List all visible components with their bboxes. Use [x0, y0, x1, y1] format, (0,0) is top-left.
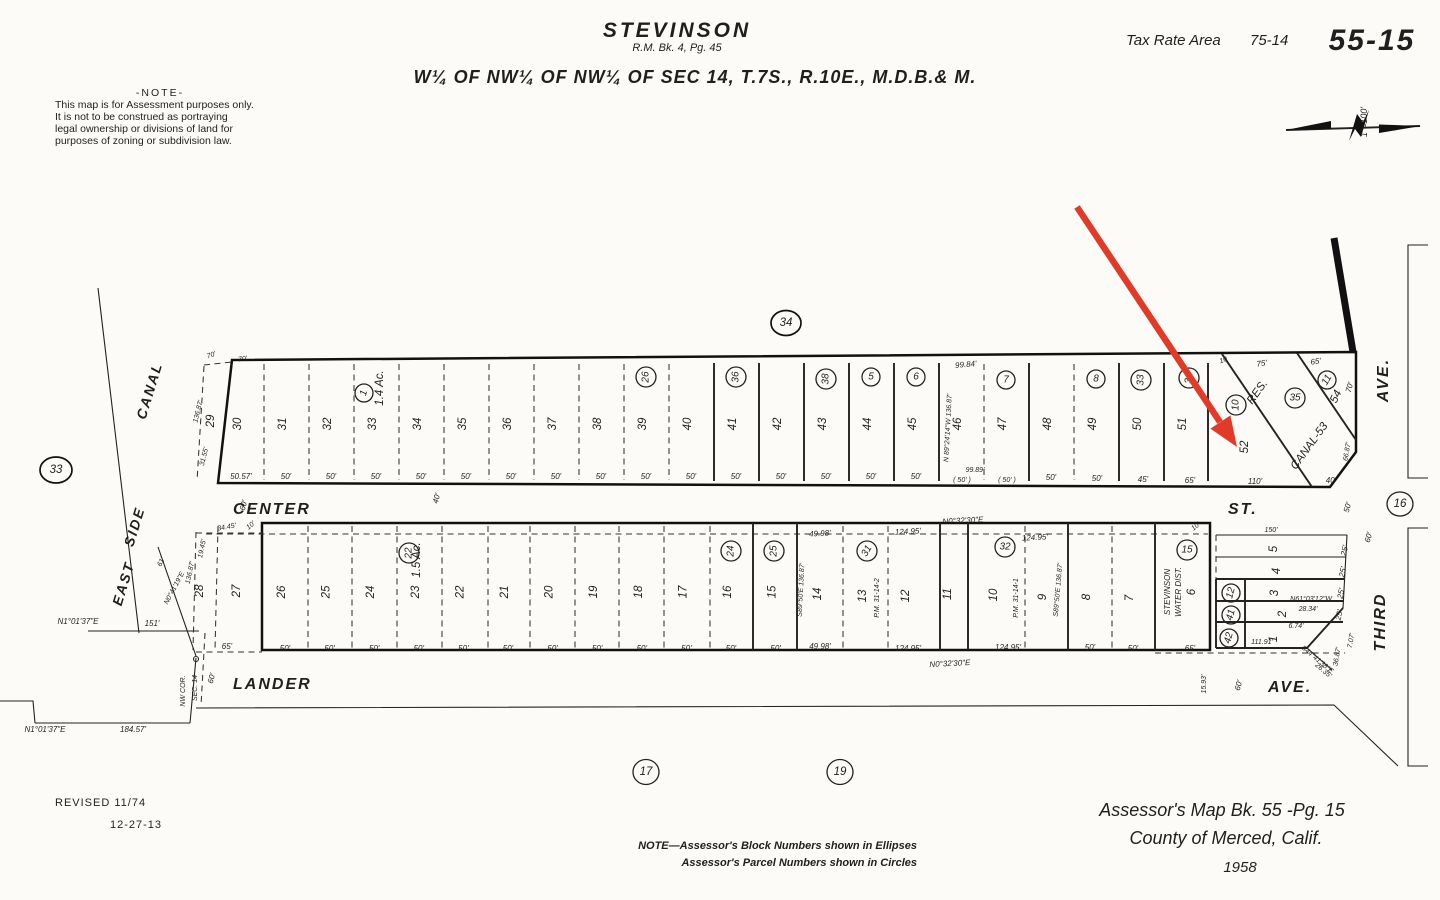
- parcel-circle-number: 7: [1003, 375, 1009, 386]
- svg-text:15.93': 15.93': [1201, 674, 1208, 694]
- dimension-label: 50': [414, 644, 425, 653]
- svg-text:40': 40': [431, 492, 443, 505]
- lot-number: 15: [767, 585, 779, 598]
- lot-number: 18: [633, 585, 645, 598]
- svg-text:36.87': 36.87': [1332, 646, 1342, 666]
- lot-number: 33: [367, 417, 379, 430]
- dimension-label: 50': [503, 644, 514, 653]
- parcel-circle-number: 36: [731, 371, 742, 383]
- svg-text:28.34': 28.34': [1298, 606, 1319, 613]
- dimension-label: 50': [281, 472, 292, 481]
- svg-text:19.45': 19.45': [197, 538, 208, 559]
- svg-text:124.95': 124.95': [895, 644, 921, 653]
- svg-text:65': 65': [1310, 356, 1322, 366]
- svg-text:70': 70': [206, 351, 218, 361]
- svg-text:34.45': 34.45': [217, 522, 237, 532]
- lot-number: 50: [1132, 417, 1144, 430]
- svg-text:111.91': 111.91': [1251, 639, 1273, 646]
- lot-number: 46: [952, 417, 964, 430]
- parcel-circle-number: 5: [868, 372, 874, 383]
- dimension-label: 50': [324, 644, 335, 653]
- parcel-circle-number: 41: [1224, 608, 1238, 622]
- lot-number: 43: [817, 417, 829, 430]
- lot-number: 24: [365, 586, 377, 600]
- lot-number: 51: [1177, 418, 1189, 431]
- dimension-label: 50': [681, 644, 692, 653]
- dimension-label: 50.57': [230, 472, 252, 481]
- parcel-circle-number: 15: [1181, 545, 1193, 556]
- lot-number: 39: [637, 417, 649, 430]
- svg-text:99.89': 99.89': [966, 467, 986, 474]
- note-line: It is not to be construed as portraying: [55, 111, 228, 123]
- svg-text:40': 40': [1326, 476, 1337, 485]
- svg-text:6: 6: [1186, 588, 1198, 595]
- svg-text:N0°41'19"E: N0°41'19"E: [162, 570, 186, 606]
- dimension-label: 50': [280, 644, 291, 653]
- parcel-map-ref: P.M. 31-14-1: [1013, 578, 1020, 618]
- svg-text:7.07': 7.07': [1347, 632, 1357, 649]
- note-line: This map is for Assessment purposes only…: [55, 99, 254, 111]
- lot-number: 45: [907, 417, 919, 430]
- north-arrow-icon: 1"=100': [1286, 107, 1421, 141]
- dimension-label: 50': [641, 472, 652, 481]
- svg-text:65': 65': [222, 642, 233, 651]
- lot-number: 13: [857, 589, 869, 602]
- parcel-circles: 1 26 36 38 5 6 7 8 33 34 10 35 11 22 24 …: [355, 367, 1336, 647]
- svg-text:6.74': 6.74': [1289, 623, 1305, 630]
- svg-text:10': 10': [245, 520, 257, 532]
- parcel-circle-number: 35: [1289, 393, 1301, 404]
- dimension-label: 50': [686, 472, 697, 481]
- acreage-label: 1.4 Ac.: [374, 370, 386, 405]
- street-label-lander: LANDER: [233, 676, 312, 693]
- dimension-label: 50': [770, 644, 781, 653]
- block-number: 33: [50, 464, 63, 476]
- parcel-circle-number: 24: [726, 545, 737, 558]
- dimension-label: 50': [551, 472, 562, 481]
- parcel-circle-number: 8: [1093, 374, 1099, 385]
- lot-number: 41: [727, 418, 739, 431]
- street-label-third: THIRD: [1372, 593, 1389, 652]
- svg-text:WATER DIST.: WATER DIST.: [1174, 567, 1183, 617]
- svg-text:N0°32'30"E: N0°32'30"E: [929, 658, 971, 669]
- lot-number: 2: [1277, 610, 1289, 618]
- lot-number: 25: [321, 585, 333, 599]
- dimension-label: 50': [461, 472, 472, 481]
- revised-date: REVISED 11/74: [55, 797, 146, 809]
- svg-text:N1°01'37"E: N1°01'37"E: [25, 725, 67, 734]
- lot-number: 3: [1269, 589, 1281, 596]
- dimension-label: 50': [458, 644, 469, 653]
- block-number: 16: [1394, 498, 1407, 510]
- svg-text:124.95': 124.95': [1022, 532, 1049, 542]
- red-pointer-arrow: [1077, 207, 1237, 447]
- tax-rate-area-value: 75-14: [1250, 32, 1288, 49]
- canal-53-label: CANAL-53: [1289, 420, 1331, 472]
- canal-label-canal: CANAL: [133, 360, 166, 421]
- west-boundary-lines: [0, 288, 199, 723]
- svg-text:75': 75': [1256, 358, 1268, 368]
- lot-number: 26: [276, 585, 288, 599]
- street-label-center-suffix: ST.: [1228, 501, 1258, 518]
- dimension-label: 50': [776, 472, 787, 481]
- parcel-circle-number: 6: [913, 372, 919, 383]
- lot-number: 9: [1037, 593, 1049, 600]
- lot-number: 37: [547, 417, 559, 430]
- svg-text:31.55': 31.55': [199, 446, 211, 467]
- parcel-circle-number: 26: [641, 371, 652, 384]
- svg-text:110': 110': [1248, 477, 1263, 486]
- lower-lot-lines-solid: [753, 523, 1155, 650]
- parcel-circle-number: 31: [859, 543, 874, 558]
- note-title: -NOTE-: [136, 87, 184, 99]
- svg-text:50': 50': [1092, 474, 1103, 483]
- svg-text:124.95': 124.95': [895, 526, 922, 536]
- dimension-label: 25': [1333, 608, 1344, 622]
- svg-text:( 50' ): ( 50' ): [998, 477, 1016, 484]
- water-district-label: STEVINSON WATER DIST. 6: [1163, 567, 1198, 617]
- dimension-label: 25': [1337, 565, 1348, 579]
- svg-text:45': 45': [1138, 475, 1149, 484]
- lot-number: 31: [277, 418, 289, 431]
- parcel-circle-number: 38: [821, 373, 832, 385]
- map-subtitle: R.M. Bk. 4, Pg. 45: [632, 42, 722, 54]
- svg-text:50': 50': [1342, 501, 1354, 514]
- svg-text:65': 65': [1185, 476, 1196, 485]
- dimension-label: 50': [506, 472, 517, 481]
- svg-text:124.95': 124.95': [995, 643, 1021, 652]
- lot-number: 10: [988, 588, 1000, 601]
- lot-number: 36: [502, 417, 514, 430]
- dimension-label: 50': [592, 644, 603, 653]
- svg-text:136.87': 136.87': [192, 399, 204, 423]
- svg-text:N1°01'37"E: N1°01'37"E: [58, 617, 100, 626]
- svg-text:49.98': 49.98': [809, 642, 831, 651]
- lot-number: 16: [722, 585, 734, 598]
- svg-text:N0°32'30"E: N0°32'30"E: [942, 515, 984, 526]
- lot-number: 42: [772, 417, 784, 430]
- parcel-circle-number: 33: [1136, 374, 1147, 386]
- assessor-map-sheet: -NOTE- This map is for Assessment purpos…: [0, 0, 1440, 900]
- svg-text:S89°50'E 136.87': S89°50'E 136.87': [1052, 562, 1065, 617]
- svg-text:50': 50': [1128, 644, 1139, 653]
- nw-corner-label: NW COR.: [180, 675, 187, 706]
- credit-year: 1958: [1223, 859, 1257, 876]
- strip-25-dims: 25'25'25'25': [1333, 544, 1350, 622]
- parcel-circle-number: 42: [1222, 631, 1236, 645]
- street-label-third-suffix: AVE.: [1375, 358, 1392, 403]
- lot-number: 38: [592, 417, 604, 430]
- lot-number: 7: [1124, 594, 1136, 601]
- dimension-label: 50': [369, 644, 380, 653]
- svg-text:184.57': 184.57': [120, 725, 146, 734]
- dimension-label: 50': [731, 472, 742, 481]
- lot-number: 30: [232, 417, 244, 430]
- lot-number: 34: [412, 418, 424, 431]
- lot-number: 44: [862, 418, 874, 431]
- lot-number: 21: [499, 586, 511, 600]
- svg-text:N61°03'12"W: N61°03'12"W: [1290, 595, 1333, 603]
- note-line: purposes of zoning or subdivision law.: [55, 135, 232, 147]
- lot-number: 49: [1087, 417, 1099, 430]
- footer-note-1: NOTE—Assessor's Block Numbers shown in E…: [638, 840, 917, 852]
- svg-text:60': 60': [1363, 531, 1375, 544]
- svg-text:10: 10: [1219, 356, 1229, 365]
- parcel-circle-number: 12: [1224, 586, 1238, 600]
- footer-note-2: Assessor's Parcel Numbers shown in Circl…: [680, 857, 917, 869]
- lander-south-line: [196, 705, 1398, 766]
- map-canvas: -NOTE- This map is for Assessment purpos…: [0, 0, 1440, 900]
- sheet-number: 55-15: [1329, 24, 1416, 57]
- tax-rate-area-label: Tax Rate Area: [1126, 32, 1221, 49]
- parcel-circle-number: 22: [404, 547, 415, 560]
- scale-label: 1"=100': [1359, 107, 1369, 137]
- lot-number: 28: [194, 584, 206, 598]
- dimension-label: 50': [637, 644, 648, 653]
- lot-number: 19: [588, 585, 600, 598]
- credit-book-page: Assessor's Map Bk. 55 -Pg. 15: [1098, 800, 1346, 820]
- lot-number: 40: [682, 417, 694, 430]
- svg-text:70': 70': [1344, 381, 1356, 394]
- lot-number: 27: [231, 584, 243, 598]
- svg-text:STEVINSON: STEVINSON: [1163, 569, 1172, 615]
- lot-number: 35: [457, 417, 469, 430]
- lot-number: 4: [1271, 568, 1283, 574]
- lot-number: 17: [677, 585, 689, 598]
- svg-text:60': 60': [1233, 679, 1245, 692]
- parcel-circle-number: 11: [1320, 373, 1335, 387]
- upper-bottom-dims: 50.57'50'50'50'50'50'50'50'50'50'50'50'5…: [230, 472, 921, 481]
- lot-number: 47: [997, 417, 1009, 430]
- map-title: STEVINSON: [603, 19, 751, 42]
- dimension-label: 50': [596, 472, 607, 481]
- note-line: legal ownership or divisions of land for: [55, 123, 234, 135]
- block-number: 19: [834, 766, 847, 778]
- parcel-map-ref: P.M. 31-14-2: [874, 578, 881, 618]
- dimension-label: 50': [821, 472, 832, 481]
- upper-lot-numbers: 3031323334353637383940414243444546474849…: [232, 417, 1189, 430]
- svg-text:151': 151': [145, 619, 160, 628]
- lot-number: 20: [544, 585, 556, 599]
- lot-number: 52: [1239, 440, 1251, 453]
- svg-text:65': 65': [1185, 644, 1196, 653]
- west-bearings: N1°01'37"E 151' N1°01'37"E 184.57' N0°41…: [25, 556, 199, 734]
- street-label-lander-suffix: AVE.: [1267, 679, 1312, 696]
- dimension-label: 50': [911, 472, 922, 481]
- canal-thick-bar: [1334, 238, 1353, 352]
- svg-text:136.87': 136.87': [185, 560, 197, 584]
- legal-description: W¼ OF NW¼ OF NW¼ OF SEC 14, T.7S., R.10E…: [414, 67, 977, 87]
- svg-text:70': 70': [238, 355, 249, 364]
- third-ave-east-lines: [1408, 245, 1428, 766]
- canal-53-diagonals: [1222, 353, 1356, 487]
- lot-number: 14: [812, 588, 824, 601]
- lot-number: 8: [1081, 593, 1093, 600]
- block-number: 17: [640, 766, 653, 778]
- credit-county: County of Merced, Calif.: [1129, 828, 1322, 848]
- dimension-label: 50': [866, 472, 877, 481]
- lot-number: 5: [1268, 545, 1280, 552]
- lower-bottom-dims: 50'50'50'50'50'50'50'50'50'50'50'50': [280, 644, 781, 653]
- dimension-label: 25': [1335, 587, 1346, 601]
- revised-date-2: 12-27-13: [110, 819, 162, 831]
- lot-number: 22: [454, 585, 466, 599]
- svg-text:99.84': 99.84': [955, 359, 978, 370]
- dimension-label: 25': [1339, 544, 1350, 558]
- svg-text:49.98': 49.98': [809, 528, 831, 538]
- parcel-circle-number: 10: [1231, 399, 1242, 411]
- lot-number: 48: [1042, 417, 1054, 430]
- lot-number: 12: [900, 589, 912, 602]
- svg-text:50': 50': [1085, 643, 1096, 652]
- block-number: 34: [780, 317, 793, 329]
- svg-text:61': 61': [156, 556, 167, 568]
- svg-text:150': 150': [1264, 527, 1278, 534]
- svg-text:( 50' ): ( 50' ): [953, 477, 971, 484]
- dimension-label: 50': [326, 472, 337, 481]
- lot-number: 11: [942, 588, 954, 600]
- lot-number: 23: [410, 585, 422, 599]
- note-block: -NOTE- This map is for Assessment purpos…: [55, 87, 254, 147]
- lot-number: 29: [205, 414, 217, 428]
- parcel-circle-number: 25: [769, 545, 780, 558]
- dimension-label: 50': [726, 644, 737, 653]
- dimension-label: 50': [371, 472, 382, 481]
- dimension-label: 50': [416, 472, 427, 481]
- svg-text:50': 50': [1046, 473, 1057, 482]
- lot-number: 32: [322, 417, 334, 430]
- svg-text:60': 60': [206, 672, 218, 685]
- parcel-circle-number: 1: [358, 389, 370, 397]
- nw-corner-label: SEC. 14: [192, 675, 199, 701]
- dimension-label: 50': [547, 644, 558, 653]
- lower-lot-numbers: 262524232221201918171615: [276, 585, 779, 599]
- parcel-circle-number: 32: [999, 542, 1011, 553]
